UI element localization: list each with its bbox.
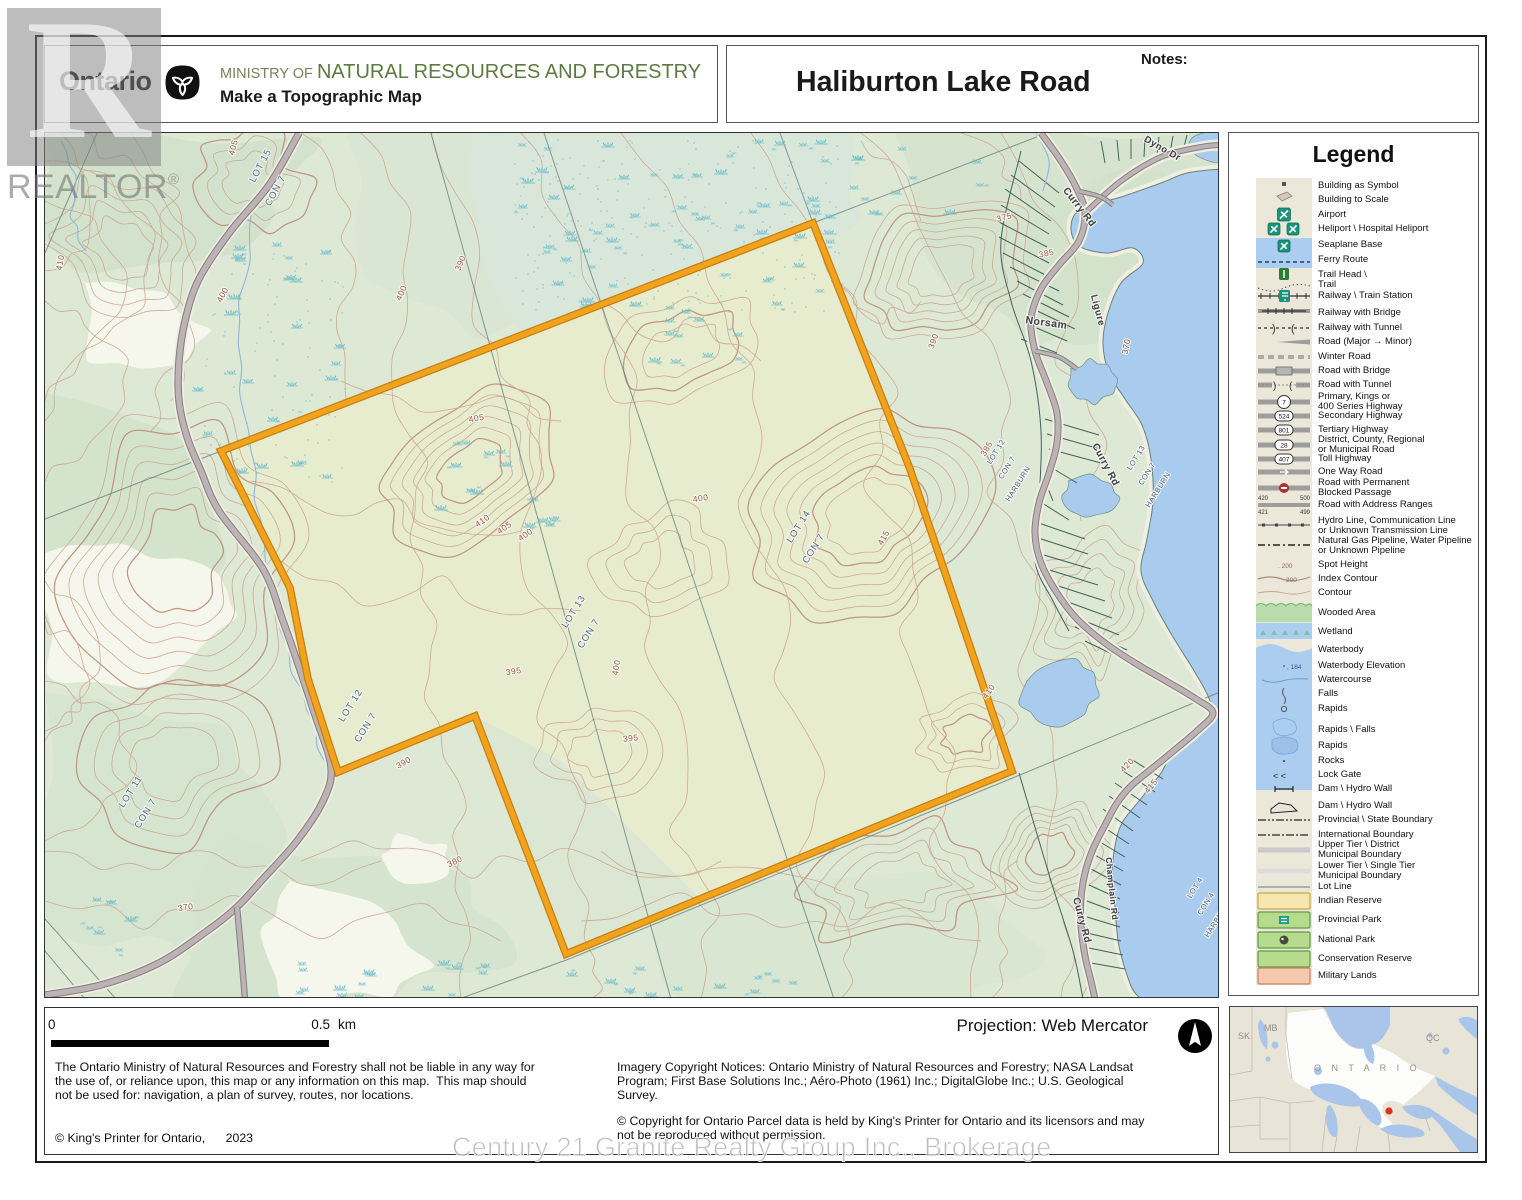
svg-text:< <: < < [1273,771,1286,781]
svg-text:395: 395 [622,732,639,744]
svg-text:28: 28 [1280,443,1288,450]
svg-text:): ) [1273,381,1276,392]
svg-text:QC: QC [1426,1033,1440,1043]
svg-text:500: 500 [1300,496,1311,502]
svg-text:, 184: , 184 [1287,664,1302,671]
svg-text:407: 407 [1279,457,1290,464]
svg-text:200: 200 [1286,577,1297,584]
svg-text:420: 420 [1258,496,1269,502]
svg-text:801: 801 [1279,428,1290,435]
svg-text:7: 7 [1282,400,1286,407]
svg-text:. 200: . 200 [1278,563,1293,570]
svg-text:MB: MB [1264,1023,1278,1033]
svg-text:): ) [1272,323,1276,335]
svg-text:(: ( [1291,323,1295,335]
svg-text:SK: SK [1238,1031,1250,1041]
svg-text:O N T A R I O: O N T A R I O [1314,1063,1421,1073]
svg-text:499: 499 [1300,510,1311,516]
svg-text:524: 524 [1279,414,1290,421]
svg-text:421: 421 [1258,510,1269,516]
